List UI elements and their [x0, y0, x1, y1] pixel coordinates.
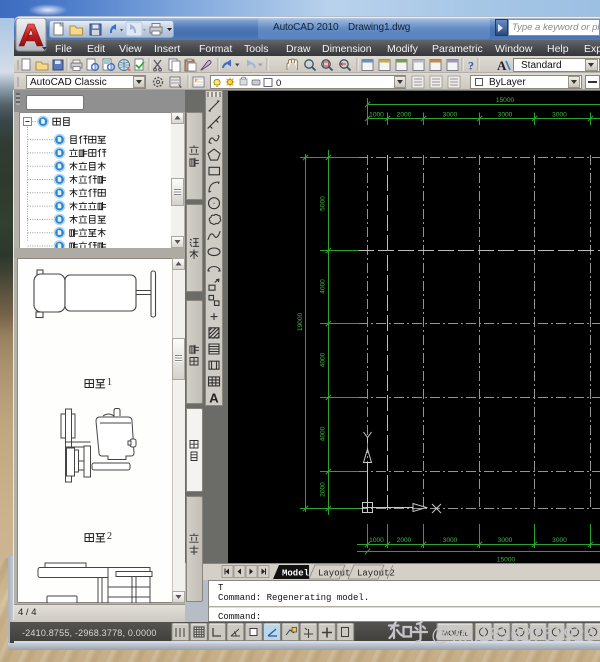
svg-text:1000: 1000: [369, 537, 384, 544]
svg-text:2000: 2000: [397, 537, 412, 544]
svg-text:3000: 3000: [498, 537, 513, 544]
svg-text:A: A: [497, 58, 507, 72]
svg-text:0: 0: [276, 78, 281, 88]
svg-text:19000: 19000: [297, 313, 304, 332]
svg-text:15000: 15000: [496, 97, 515, 104]
svg-text:A: A: [209, 391, 219, 406]
svg-text:2000: 2000: [397, 112, 412, 119]
svg-text:1000: 1000: [369, 112, 384, 119]
svg-text:4000: 4000: [320, 426, 327, 441]
svg-text:3000: 3000: [443, 537, 458, 544]
svg-text:@wx.18362762928: @wx.18362762928: [431, 625, 595, 646]
svg-text:3000: 3000: [552, 112, 567, 119]
svg-text:Model: Model: [282, 569, 310, 579]
svg-text:3000: 3000: [443, 112, 458, 119]
svg-text:4000: 4000: [320, 352, 327, 367]
svg-text:4000: 4000: [320, 279, 327, 294]
svg-text:5000: 5000: [320, 196, 327, 211]
svg-text:3000: 3000: [552, 537, 567, 544]
svg-text:3000: 3000: [498, 112, 513, 119]
svg-text:2000: 2000: [320, 482, 327, 497]
svg-text:?: ?: [468, 59, 474, 73]
